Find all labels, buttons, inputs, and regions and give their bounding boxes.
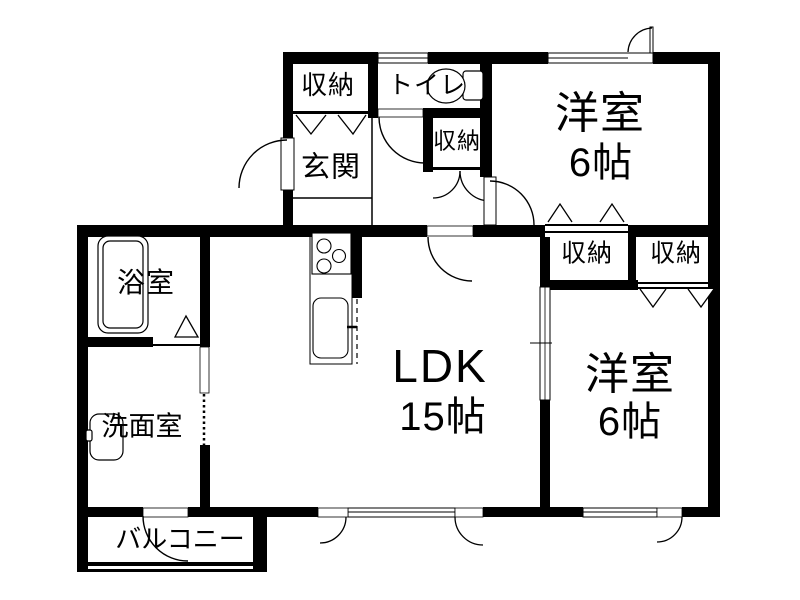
bedroom-top-door — [484, 177, 534, 225]
ldk-door — [427, 226, 473, 281]
room-label-closet-top: 収納 — [561, 242, 613, 267]
room-label-ldk: LDK — [392, 343, 487, 389]
ldk-south-window — [348, 508, 455, 517]
bedroom-bottom-terrace-door — [657, 508, 682, 542]
stove-icon — [312, 233, 351, 274]
bathroom-folding-door — [175, 316, 198, 337]
room-label-balcony: バルコニー — [115, 526, 244, 552]
room-label-closet-bottom: 収納 — [650, 242, 702, 267]
room-label-bathroom: 浴室 — [117, 269, 175, 297]
room-label-closet-hall: 収納 — [433, 130, 481, 153]
room-size-ldk: 15帖 — [399, 397, 487, 437]
window-swing-leaf — [650, 27, 653, 53]
kitchen-sink-icon — [313, 298, 357, 358]
closet-chevrons — [296, 115, 714, 307]
room-size-bedroom-top: 6帖 — [569, 143, 633, 183]
ldk-bedroom-sliding-door — [530, 287, 552, 400]
toilet-door — [378, 109, 425, 163]
entrance-door — [239, 138, 294, 190]
room-label-bedroom-bottom: 洋室 — [585, 353, 675, 397]
toilet-window — [378, 53, 428, 63]
room-label-entrance: 玄関 — [301, 154, 361, 183]
room-label-toilet: トイレ — [388, 74, 466, 99]
bedroom-top-window — [548, 27, 653, 63]
room-label-washroom: 洗面室 — [102, 414, 183, 441]
room-size-bedroom-bottom: 6帖 — [598, 402, 662, 442]
floor-plan: 収納 トイレ 収納 玄関 洋室 6帖 浴室 収納 収納 LDK 15帖 洋室 6… — [0, 0, 800, 600]
room-label-closet-entrance: 収納 — [301, 72, 355, 98]
hall-closet-doors — [433, 171, 490, 201]
washroom-sliding-door — [200, 347, 209, 445]
room-label-bedroom-top: 洋室 — [555, 92, 645, 136]
bedroom-bottom-window — [583, 508, 657, 517]
